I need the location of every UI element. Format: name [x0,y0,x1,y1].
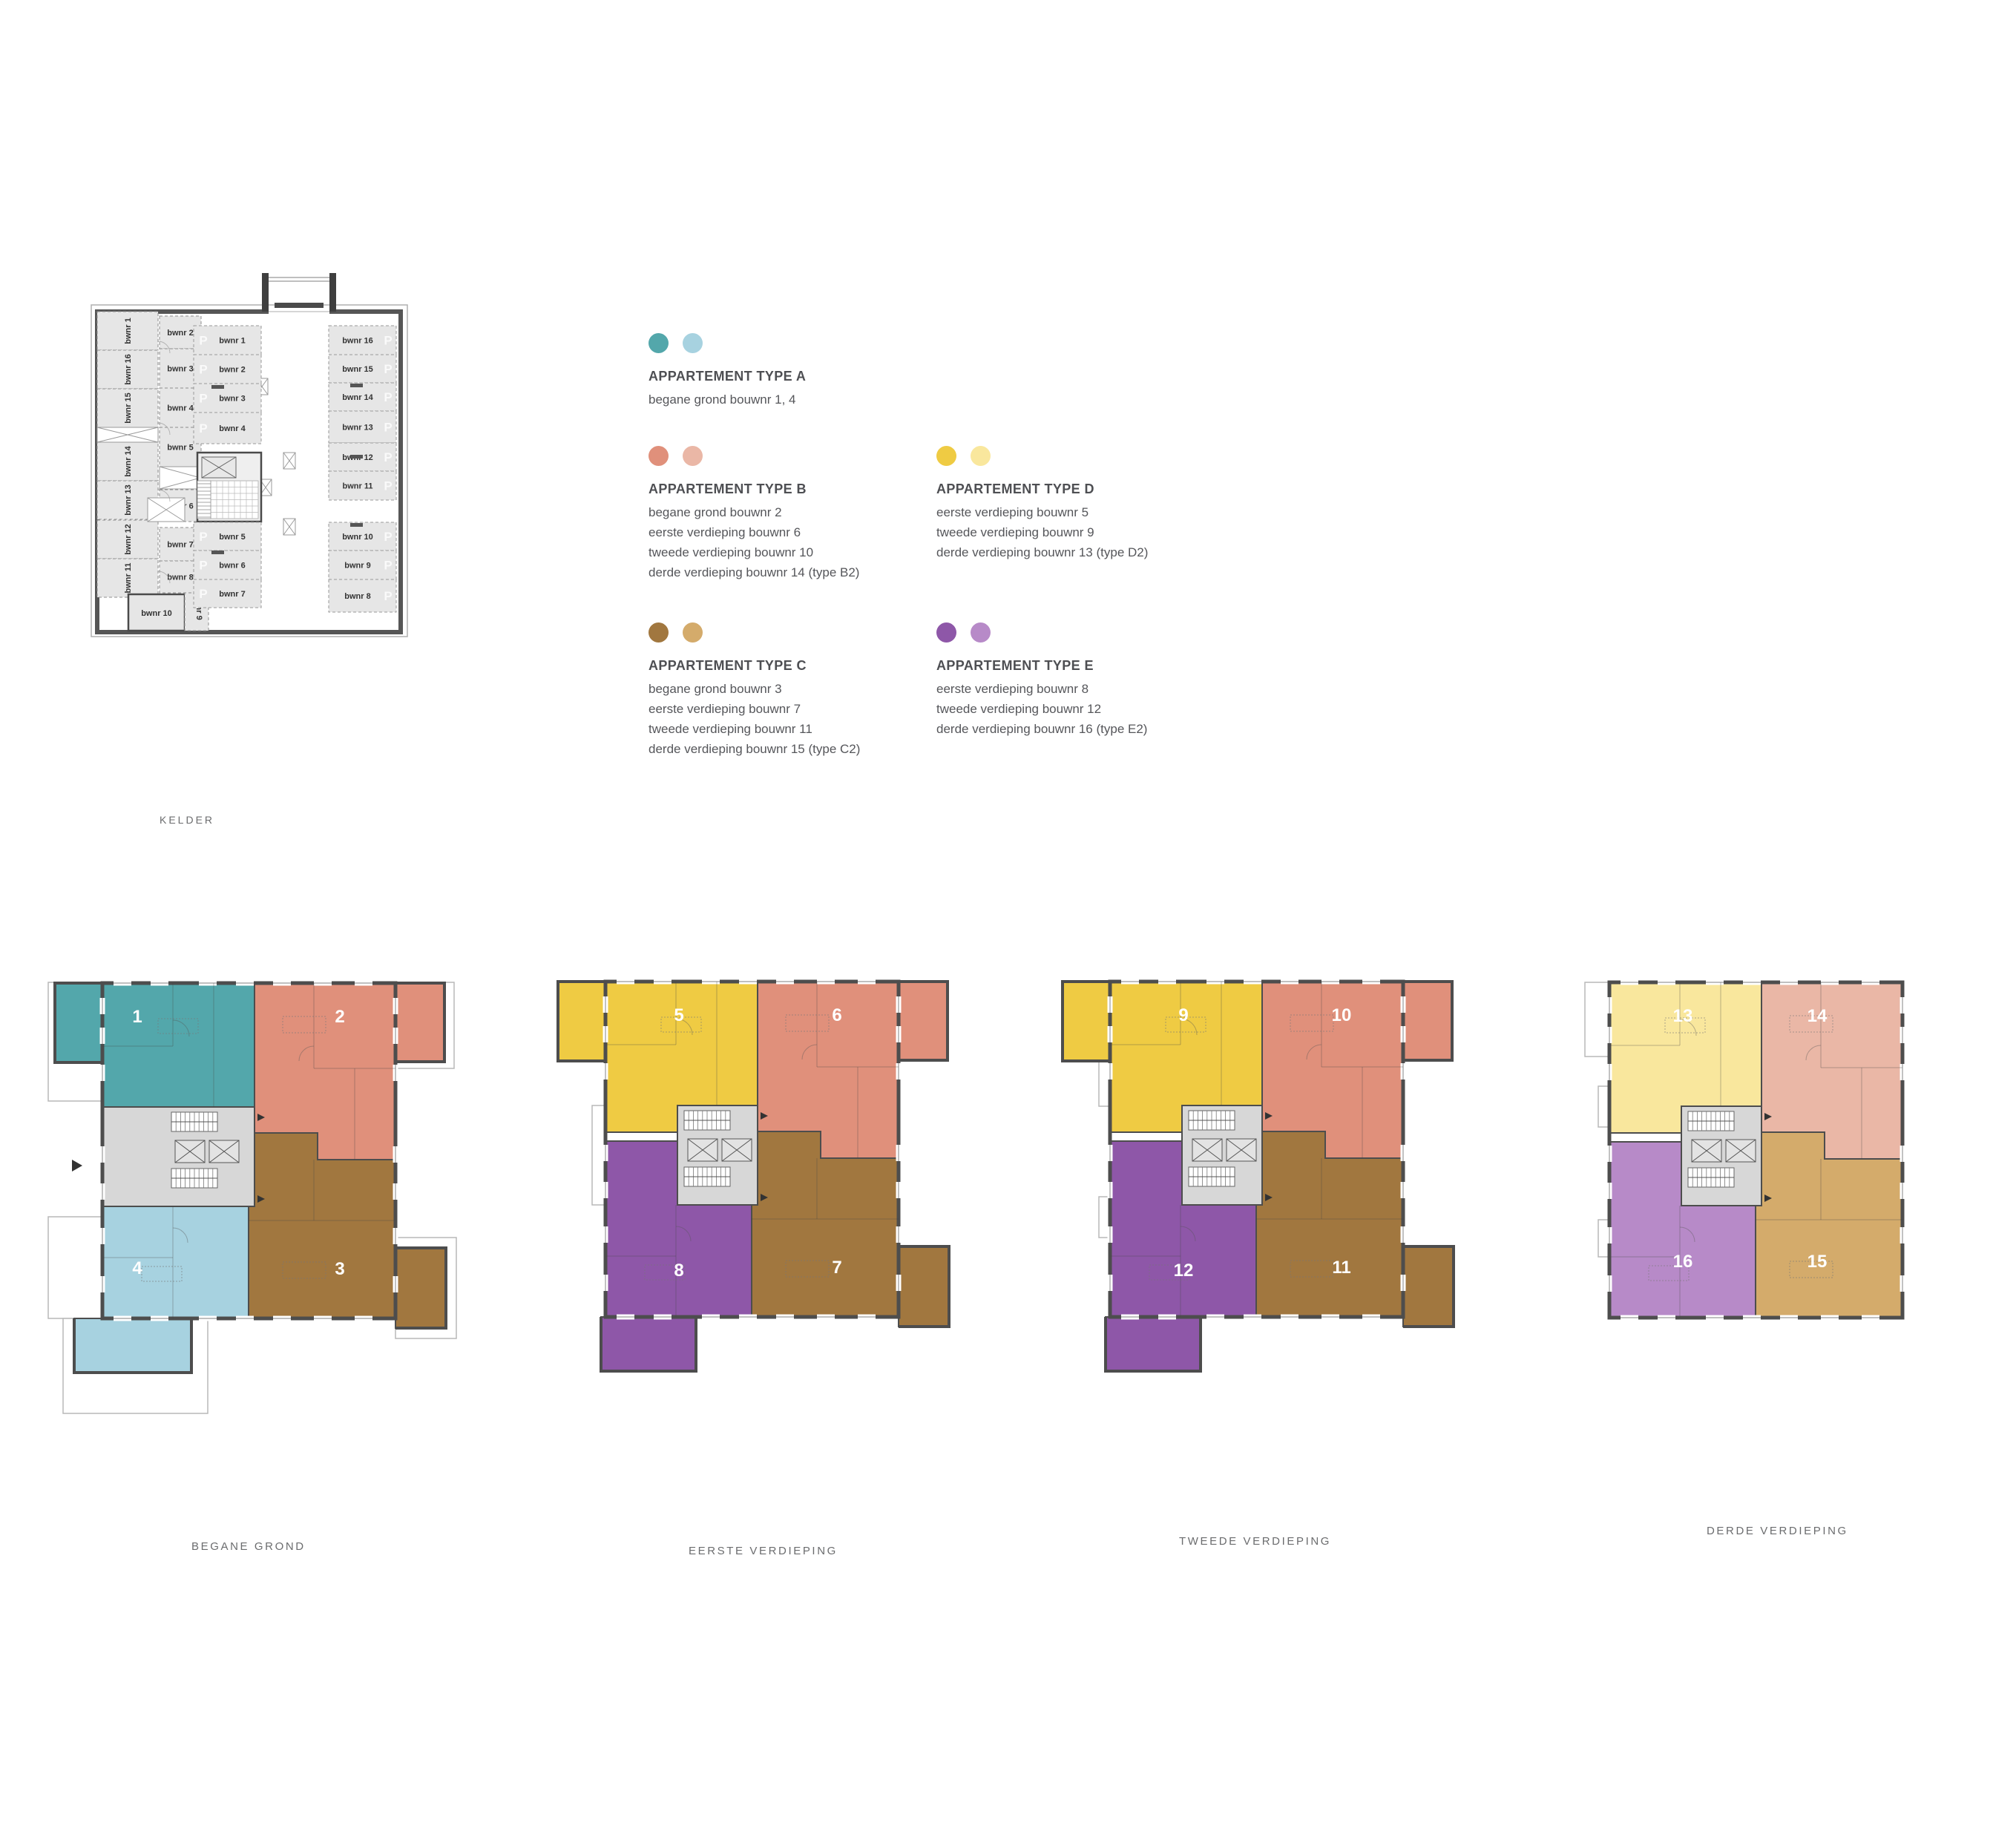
floor-plan-derde-verdieping: 13141516 [1554,975,1966,1420]
parking-p-letter: P [199,559,207,573]
parking-spot-label: bwnr 8 [344,592,370,601]
storage-unit-label: bwnr 11 [124,563,133,594]
apartment-area [1756,1132,1902,1318]
apartment-area [102,1206,249,1318]
entrance-arrow [72,1160,82,1172]
legend-dots-b [649,446,930,470]
apartment-area [249,1133,395,1318]
label-tweede-verdieping: TWEEDE VERDIEPING [1179,1535,1331,1548]
parking-p-letter: P [384,390,392,404]
legend-lines-a: begane grond bouwnr 1, 4 [649,390,930,410]
legend-lines-b: begane grond bouwnr 2eerste verdieping b… [649,502,930,582]
apartment-number: 8 [674,1261,683,1281]
parking-spot-label: bwnr 1 [219,337,245,346]
legend-title-c: APPARTEMENT TYPE C [649,658,930,674]
label-derde-verdieping: DERDE VERDIEPING [1707,1525,1848,1537]
legend-type-a: APPARTEMENT TYPE A begane grond bouwnr 1… [649,333,930,410]
legend-color-dot [649,446,669,466]
legend-lines-d: eerste verdieping bouwnr 5tweede verdiep… [936,502,1218,562]
legend-dots-c [649,622,930,646]
legend-line: tweede verdieping bouwnr 12 [936,699,1218,719]
legend-type-b: APPARTEMENT TYPE B begane grond bouwnr 2… [649,446,930,582]
apartment-number: 16 [1673,1252,1693,1272]
parking-spot-label: bwnr 16 [342,337,373,346]
storage-unit-label: bwnr 12 [124,524,133,555]
legend-line: derde verdieping bouwnr 14 (type B2) [649,562,930,582]
parking-spot-label: bwnr 10 [342,533,373,542]
apartment-number: 7 [832,1258,841,1278]
legend-color-dot [936,622,956,643]
legend-line: derde verdieping bouwnr 13 (type D2) [936,542,1218,562]
legend-line: derde verdieping bouwnr 15 (type C2) [649,739,930,759]
legend-title-b: APPARTEMENT TYPE B [649,482,930,497]
apartment-number: 6 [832,1005,841,1025]
floor-plan-eerste-verdieping: 5678 [550,974,962,1419]
legend-color-dot [683,333,703,353]
legend-type-e: APPARTEMENT TYPE E eerste verdieping bou… [936,622,1218,739]
parking-p-letter: P [384,450,392,464]
apartment-number: 1 [132,1007,142,1027]
legend-line: eerste verdieping bouwnr 5 [936,502,1218,522]
parking-spot-label: bwnr 2 [219,366,245,375]
legend-line: tweede verdieping bouwnr 10 [649,542,930,562]
floor-plan-begane-grond: 1234 [47,976,459,1421]
parking-spot-label: bwnr 15 [342,365,373,374]
parking-p-letter: P [384,559,392,573]
floor-plan-svg: 13141516 [1554,975,1966,1420]
legend-title-e: APPARTEMENT TYPE E [936,658,1218,674]
apartment-number: 5 [674,1005,683,1025]
apartment-number: 11 [1332,1258,1350,1278]
legend-line: eerste verdieping bouwnr 7 [649,699,930,719]
legend-title-a: APPARTEMENT TYPE A [649,369,930,384]
parking-spot-label: bwnr 9 [344,562,370,571]
legend-line: eerste verdieping bouwnr 6 [649,522,930,542]
storage-unit-label: bwnr 10 [141,609,172,618]
parking-spot-label: bwnr 11 [343,482,373,491]
legend-dots-e [936,622,1218,646]
legend-dots-d [936,446,1218,470]
apartment-number: 14 [1807,1006,1828,1026]
legend-lines-e: eerste verdieping bouwnr 8tweede verdiep… [936,679,1218,739]
legend-color-dot [683,446,703,466]
legend-lines-c: begane grond bouwnr 3eerste verdieping b… [649,679,930,759]
parking-spot-label: bwnr 6 [219,562,245,571]
parking-p-letter: P [384,530,392,544]
parking-p-letter: P [199,334,207,348]
apartment-number: 10 [1332,1005,1352,1025]
apartment-area [752,1131,899,1317]
parking-p-letter: P [384,479,392,493]
label-begane-grond: BEGANE GROND [191,1540,306,1553]
parking-spot-label: bwnr 4 [219,424,246,433]
parking-p-letter: P [199,363,207,377]
parking-spot-label: bwnr 3 [219,395,245,404]
legend-dots-a [649,333,930,357]
apartment-number: 15 [1807,1252,1828,1272]
storage-unit-label: bwnr 14 [124,445,133,476]
floor-plan-svg: 9101112 [1054,974,1467,1419]
storage-unit-label: bwnr 4 [167,404,194,413]
legend-color-dot [649,622,669,643]
legend-color-dot [971,446,991,466]
parking-p-letter: P [384,589,392,603]
storage-unit-label: bwnr 13 [124,484,133,516]
parking-p-letter: P [384,334,392,348]
legend-type-d: APPARTEMENT TYPE D eerste verdieping bou… [936,446,1218,562]
apartment-area [1256,1131,1403,1317]
legend-color-dot [649,333,669,353]
apartment-number: 12 [1174,1261,1194,1281]
kelder-svg: bwnr 1bwnr 16bwnr 15bwnr 14bwnr 13bwnr 1… [89,267,412,638]
apartment-number: 4 [132,1258,142,1278]
legend-color-dot [971,622,991,643]
parking-spot-label: bwnr 14 [342,393,373,402]
legend-line: begane grond bouwnr 1, 4 [649,390,930,410]
parking-spot-label: bwnr 13 [342,424,373,433]
legend-line: begane grond bouwnr 2 [649,502,930,522]
parking-p-letter: P [199,421,207,436]
legend-line: tweede verdieping bouwnr 11 [649,719,930,739]
floor-plan-tweede-verdieping: 9101112 [1054,974,1467,1419]
storage-unit-label: bwnr 7 [167,541,193,550]
storage-unit-label: bwnr 3 [167,365,193,374]
parking-p-letter: P [199,587,207,601]
storage-unit-label: bwnr 8 [167,574,193,582]
legend-color-dot [683,622,703,643]
legend-line: tweede verdieping bouwnr 9 [936,522,1218,542]
brochure-page: bwnr 1bwnr 16bwnr 15bwnr 14bwnr 13bwnr 1… [0,0,2016,1840]
parking-p-letter: P [199,392,207,406]
parking-p-letter: P [384,421,392,435]
floor-plan-svg: 5678 [550,974,962,1419]
legend-line: derde verdieping bouwnr 16 (type E2) [936,719,1218,739]
label-eerste-verdieping: EERSTE VERDIEPING [689,1545,838,1557]
parking-spot-label: bwnr 7 [219,590,245,599]
kelder-floor-plan: bwnr 1bwnr 16bwnr 15bwnr 14bwnr 13bwnr 1… [89,267,412,638]
apartment-number: 3 [335,1259,344,1279]
storage-unit-label: bwnr 16 [124,354,133,385]
legend-line: eerste verdieping bouwnr 8 [936,679,1218,699]
storage-unit-label: bwnr 2 [167,329,193,338]
storage-unit-label: bwnr 5 [167,444,193,453]
legend-color-dot [936,446,956,466]
kelder-label: KELDER [160,814,214,826]
apartment-number: 9 [1178,1005,1188,1025]
apartment-number: 2 [335,1007,344,1027]
apartment-number: 13 [1673,1006,1693,1026]
legend-title-d: APPARTEMENT TYPE D [936,482,1218,497]
storage-unit-label: bwnr 1 [124,318,133,344]
parking-spot-label: bwnr 5 [219,533,245,542]
floor-plan-svg: 1234 [47,976,459,1421]
apartment-area [102,983,255,1107]
storage-unit-label: bwnr 15 [124,392,133,424]
legend-line: begane grond bouwnr 3 [649,679,930,699]
parking-p-letter: P [199,530,207,544]
parking-p-letter: P [384,362,392,376]
legend-type-c: APPARTEMENT TYPE C begane grond bouwnr 3… [649,622,930,759]
